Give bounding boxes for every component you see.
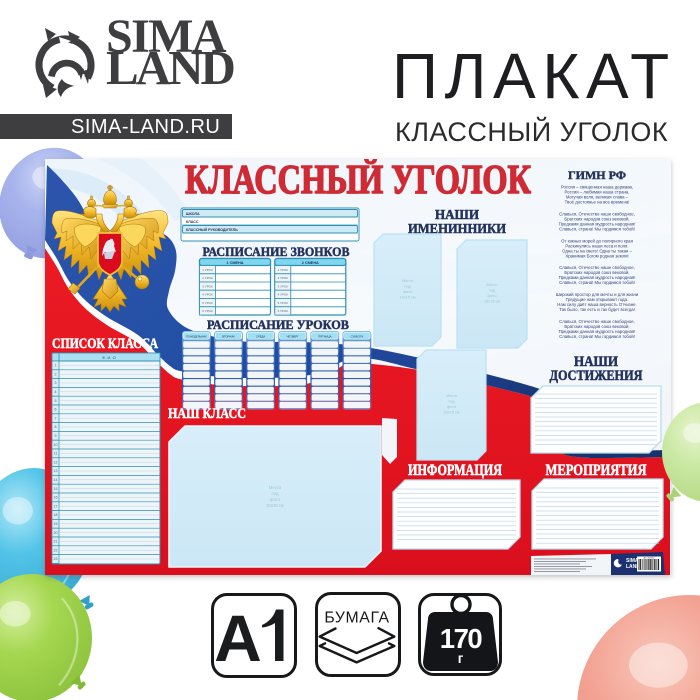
svg-text:БУМАГА: БУМАГА <box>324 610 389 627</box>
svg-text:170: 170 <box>440 623 483 654</box>
svg-text:г: г <box>458 651 464 666</box>
svg-text:А: А <box>214 601 262 675</box>
